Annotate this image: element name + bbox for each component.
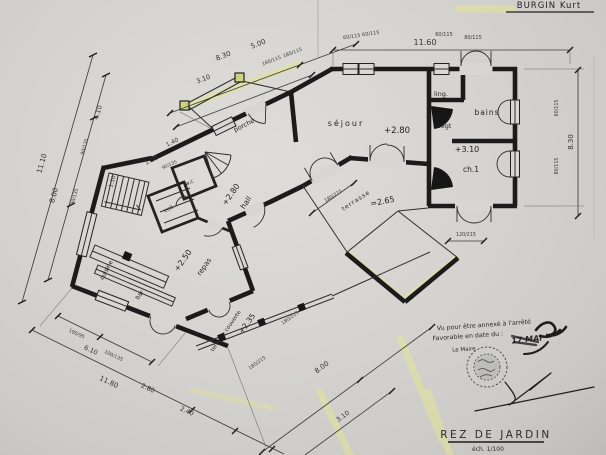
dim-bottom-left-c: 2.40 xyxy=(179,405,196,418)
window xyxy=(95,290,128,311)
approval-stamp: Vu pour être annexé à l'arrêté Favorable… xyxy=(432,318,594,411)
dim-left-inner: 8.00 xyxy=(48,187,60,204)
room-label-bains: bains xyxy=(474,108,499,117)
opening-dim: 90/135 xyxy=(80,138,90,156)
room-label-cuisine: cuisine xyxy=(99,259,115,281)
opening-dim: 180/115 xyxy=(282,47,303,60)
floor-plan-sheet: BURGIN Kurt porche séjour +2.80 ling. ba… xyxy=(0,0,606,455)
labels-layer: BURGIN Kurt porche séjour +2.80 ling. ba… xyxy=(35,1,594,424)
staircase xyxy=(101,173,149,215)
dim-bottom-mid-total: 8.00 xyxy=(313,360,330,376)
dim-left-total: 11.10 xyxy=(35,153,48,174)
room-label-degt: dégt xyxy=(437,122,452,130)
interior-layer xyxy=(90,152,458,350)
opening-dim: 80/115 xyxy=(554,158,560,175)
level-hall: +2.80 xyxy=(220,182,241,207)
stamp-line2: Favorable en date du : xyxy=(432,331,503,343)
drawing-title: REZ DE JARDIN xyxy=(440,429,551,441)
window xyxy=(343,64,358,75)
dim-right-total: 8.30 xyxy=(567,134,575,150)
opening-dim: 60/115 xyxy=(554,100,560,117)
dim-bottom-left-b: 2.80 xyxy=(140,382,157,395)
french-door xyxy=(460,51,493,75)
room-label-cell: cell. xyxy=(163,204,176,215)
window xyxy=(497,151,520,177)
window xyxy=(434,64,449,75)
level-degt: +3.10 xyxy=(455,145,480,154)
room-label-ch1: ch.1 xyxy=(463,165,479,174)
room-label-repas: repas xyxy=(196,256,214,277)
opening-dim: 100/95 xyxy=(68,328,86,341)
room-label-wc: w.c xyxy=(184,178,195,187)
opening-dim: 180/215 xyxy=(248,355,268,372)
title-block: REZ DE JARDIN éch. 1/100 xyxy=(440,429,551,453)
opening-dim: 60/115 xyxy=(362,30,380,38)
dim-left-a: 4.10 xyxy=(92,104,104,120)
level-sejour: +2.80 xyxy=(384,126,410,136)
dim-bottom-mid-a: 3.10 xyxy=(335,409,351,424)
round-stamp-icon xyxy=(467,347,507,387)
opening-dim: 160/115 xyxy=(261,55,282,68)
dim-top-total: 11.60 xyxy=(414,38,437,47)
stamp-line1: Vu pour être annexé à l'arrêté xyxy=(437,318,532,333)
floorplan-drawing: BURGIN Kurt porche séjour +2.80 ling. ba… xyxy=(0,0,606,455)
window xyxy=(498,100,520,124)
porch-post xyxy=(235,73,244,82)
opening-dim: 90/135 xyxy=(161,159,178,171)
opening-dim: 120/215 xyxy=(456,232,476,238)
room-label-sejour: séjour xyxy=(328,118,365,128)
dim-porch-width: 3.10 xyxy=(195,73,211,86)
french-door xyxy=(455,201,493,224)
opening-dim: 80/115 xyxy=(464,35,482,41)
dim-upper-left-a: 8.30 xyxy=(215,50,232,63)
client-name: BURGIN Kurt xyxy=(517,1,581,11)
door-leaf xyxy=(431,167,453,190)
dim-bottom-left-total: 11.80 xyxy=(98,374,120,390)
level-repas: +2.50 xyxy=(172,248,193,273)
french-door xyxy=(368,144,406,166)
dim-bottom-left-a: 6.10 xyxy=(83,344,100,357)
opening-dim: 180/215 xyxy=(323,188,343,203)
winder-stair-fan xyxy=(205,152,231,178)
room-label-terrasse: terrasse xyxy=(341,189,372,213)
window xyxy=(232,245,248,270)
opening-dim: 60/115 xyxy=(435,32,453,38)
dim-upper-left-b: 5.00 xyxy=(250,38,267,51)
window xyxy=(359,64,374,75)
level-terrasse: ≈2.65 xyxy=(370,195,396,209)
opening-dim: 60/115 xyxy=(343,33,361,41)
opening-dim: 100/135 xyxy=(103,349,124,363)
window xyxy=(77,212,97,257)
drawing-scale: éch. 1/100 xyxy=(472,446,504,453)
room-label-ling: ling. xyxy=(434,90,448,98)
